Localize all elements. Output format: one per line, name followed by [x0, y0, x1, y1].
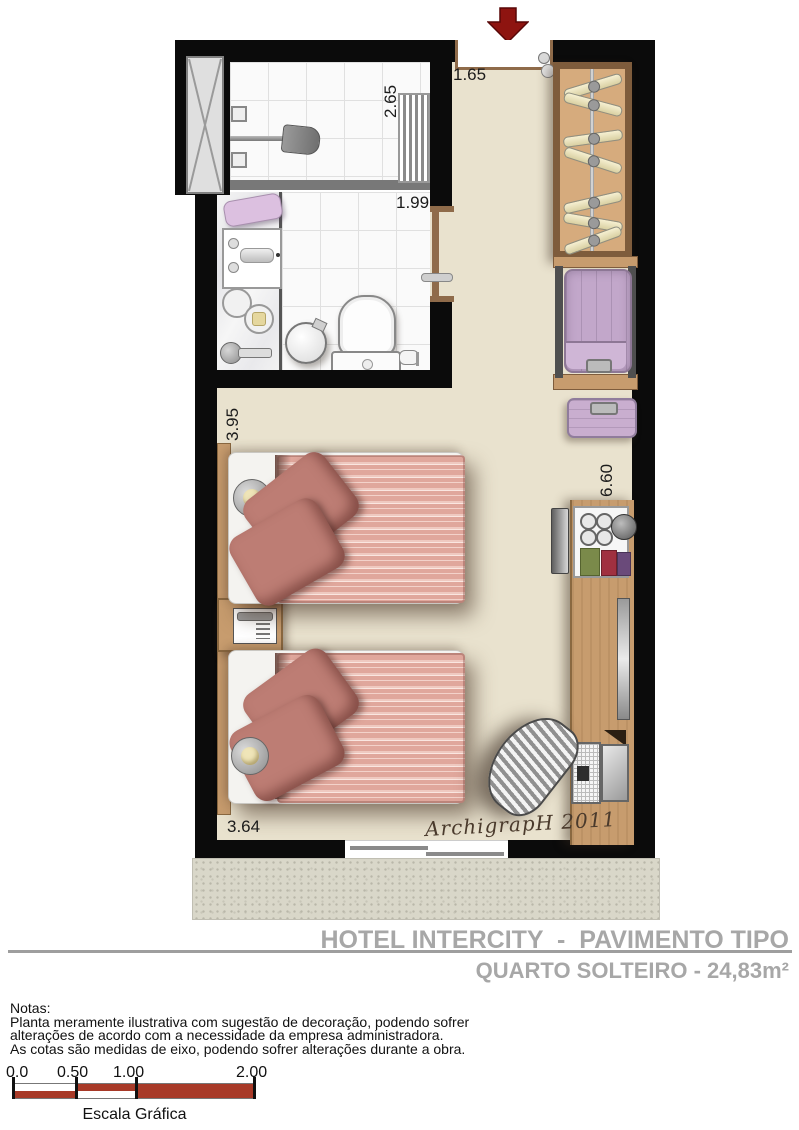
- scale-label-200: 2.00: [236, 1064, 267, 1082]
- scale-label-100: 1.00: [113, 1064, 144, 1082]
- dim-room-right: 6.60: [597, 441, 617, 497]
- shower-arm: [230, 136, 284, 141]
- wall-right: [632, 40, 655, 860]
- rack-strap-left: [555, 266, 563, 378]
- notes-block: Notas: Planta meramente ilustrativa com …: [10, 1002, 490, 1056]
- toilet-flush-button: [362, 359, 373, 370]
- bath-door-handle: [421, 273, 453, 282]
- cup: [580, 513, 597, 530]
- suitcase-small: [567, 398, 637, 438]
- shower-head: [281, 124, 322, 156]
- window-pane-left: [350, 846, 428, 850]
- ventilation-shaft: [186, 56, 224, 199]
- shower-hook-top: [231, 106, 247, 122]
- wall-bath-bottom: [217, 370, 452, 388]
- window-pane-right: [426, 852, 504, 856]
- dim-bedroom-left: 3.95: [223, 385, 243, 441]
- entry-door-handle: [538, 52, 550, 64]
- scale-tick: [75, 1077, 78, 1099]
- tv: [551, 508, 569, 574]
- telephone-keypad: [256, 623, 270, 639]
- wall-mirror: [617, 598, 630, 720]
- soap-bar: [252, 312, 266, 326]
- dim-entry: 1.65: [453, 65, 486, 85]
- kettle: [611, 514, 637, 540]
- exterior-ledge: [192, 858, 660, 920]
- sink: [222, 228, 282, 289]
- bath-door-leaf: [432, 208, 439, 300]
- suitcase-handle: [586, 359, 612, 373]
- telephone: [233, 608, 277, 644]
- sheet-subtitle: QUARTO SOLTEIRO - 24,83m²: [476, 958, 789, 984]
- dim-shower: 2.65: [381, 62, 401, 118]
- snack: [617, 552, 631, 576]
- sheet-title: HOTEL INTERCITY - PAVIMENTO TIPO: [320, 926, 789, 955]
- dim-bedroom-bottom: 3.64: [227, 817, 260, 837]
- notes-line: As cotas são medidas de eixo, podendo so…: [10, 1043, 490, 1057]
- laptop: [571, 742, 629, 804]
- sink-faucet: [276, 253, 280, 257]
- towel-rack: [398, 93, 430, 183]
- laptop-screen: [601, 744, 629, 802]
- suitcase-large: [564, 269, 632, 373]
- scale-caption: Escala Gráfica: [13, 1106, 256, 1124]
- window: [345, 840, 508, 860]
- luggage-rack: [553, 256, 638, 390]
- rack-top-bar: [553, 256, 638, 268]
- scale-segment-2: [77, 1084, 137, 1098]
- wall-left: [195, 195, 217, 860]
- bed-2: [228, 650, 464, 804]
- sink-knob-top: [228, 238, 239, 249]
- snack: [601, 550, 617, 576]
- laptop-touchpad: [577, 766, 589, 781]
- bed-1: [228, 452, 464, 604]
- scale-segment-3: [137, 1084, 255, 1098]
- bathroom-stool: [285, 322, 327, 364]
- minibar-tray: [573, 506, 629, 578]
- dim-bathroom: 1.99: [396, 193, 429, 213]
- wardrobe: [553, 62, 632, 258]
- snack: [580, 548, 600, 576]
- toilet-bowl: [338, 295, 396, 357]
- toilet-paper-holder: [416, 352, 419, 366]
- scale-tick: [135, 1077, 138, 1099]
- shower-hook-bottom: [231, 152, 247, 168]
- bed-2-reading-lamp: [231, 737, 269, 775]
- soap-dish-2: [244, 304, 274, 334]
- cup: [596, 529, 613, 546]
- wall-bath-right-upper: [430, 62, 452, 206]
- hairdryer-nozzle: [238, 348, 272, 358]
- sink-basin: [240, 248, 274, 263]
- telephone-handset: [237, 612, 273, 621]
- floor-plan-sheet: 1.65 2.65 1.99 3.95 6.60 3.64 ArchigrapH…: [0, 0, 799, 1130]
- scale-tick: [253, 1077, 256, 1099]
- scale-label-050: 0.50: [57, 1064, 88, 1082]
- cup: [580, 529, 597, 546]
- wall-bottom-left: [217, 840, 345, 860]
- scale-segment-1: [14, 1084, 77, 1098]
- scale-label-0: 0.0: [6, 1064, 28, 1082]
- rack-bottom-bar: [553, 374, 638, 390]
- suitcase-small-handle: [590, 402, 618, 415]
- nightstand: [217, 598, 283, 652]
- scale-tick: [12, 1077, 15, 1099]
- sink-knob-bottom: [228, 262, 239, 273]
